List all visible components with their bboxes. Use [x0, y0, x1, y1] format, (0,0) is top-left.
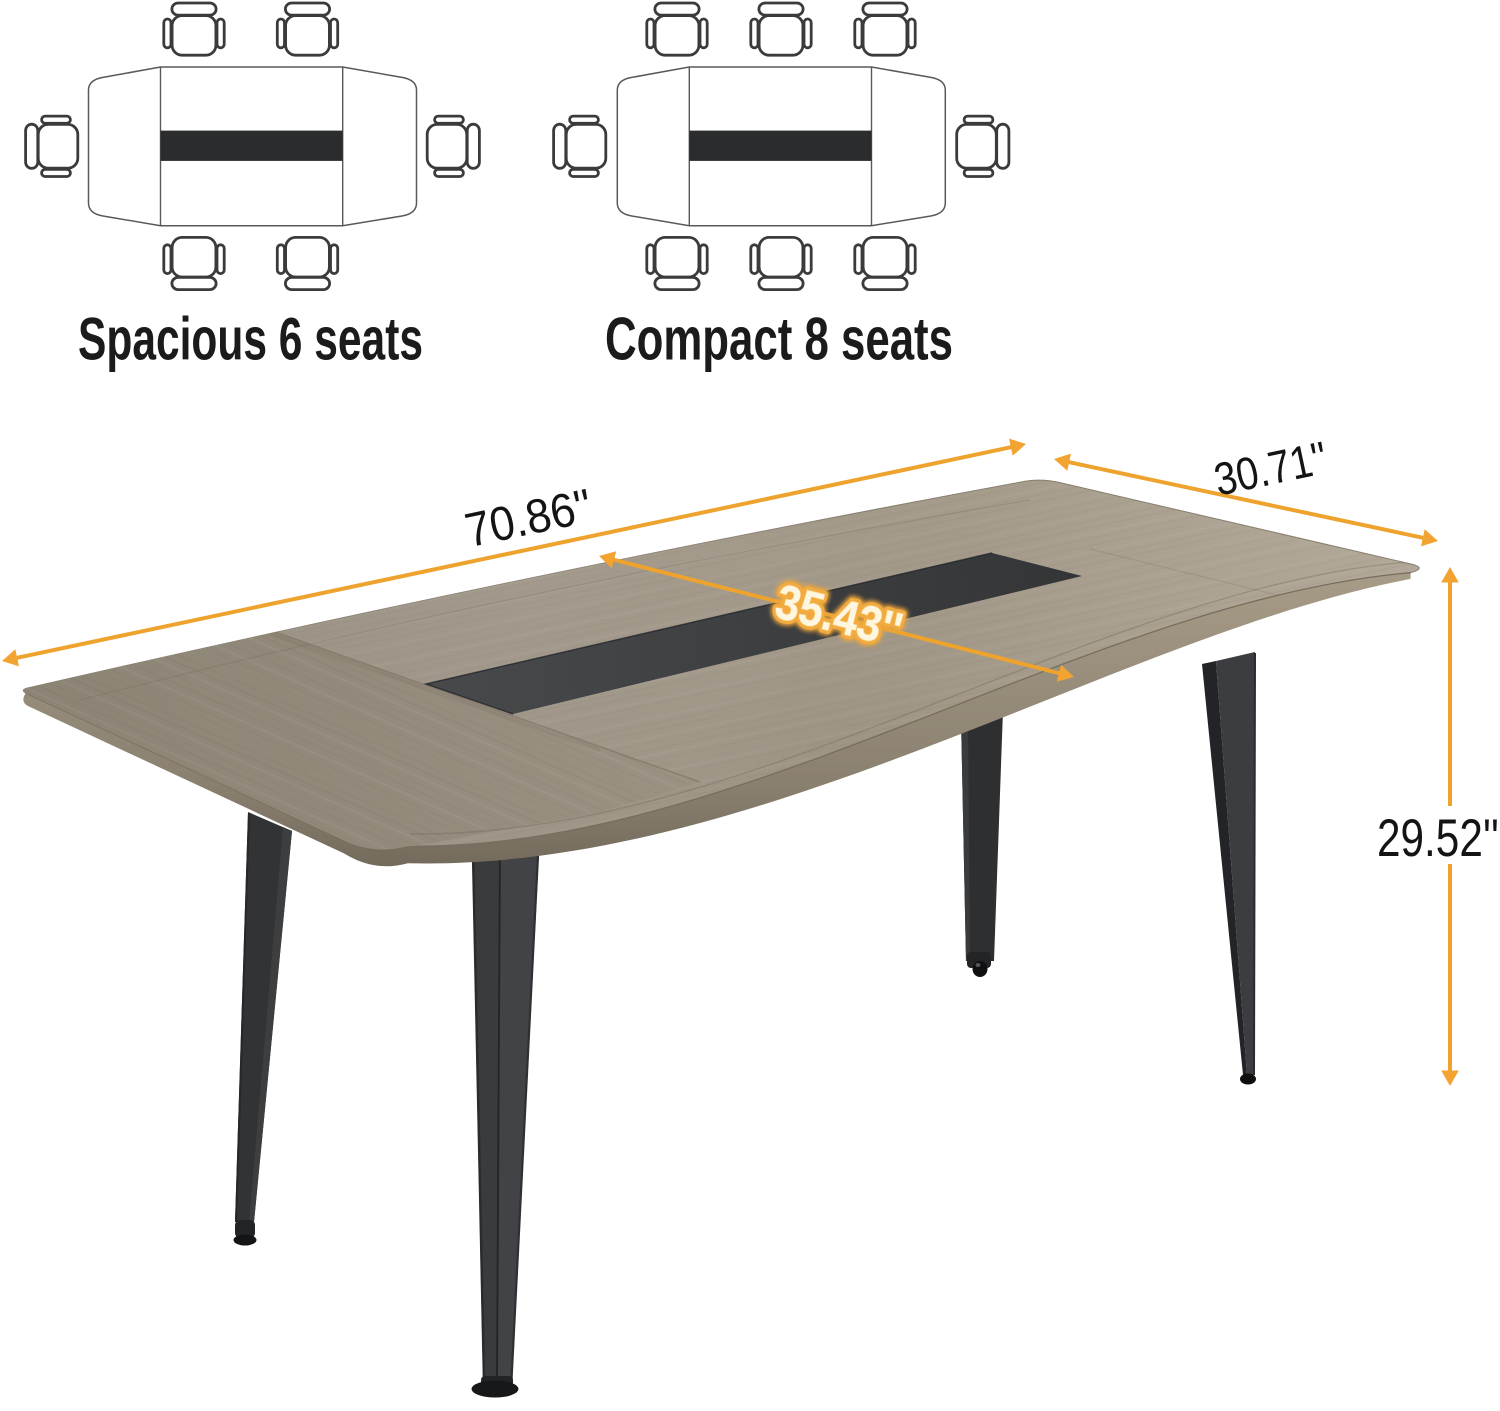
svg-text:Compact 8 seats: Compact 8 seats	[605, 306, 953, 373]
svg-text:29.52'': 29.52''	[1377, 809, 1499, 868]
svg-text:Spacious 6 seats: Spacious 6 seats	[78, 306, 423, 373]
